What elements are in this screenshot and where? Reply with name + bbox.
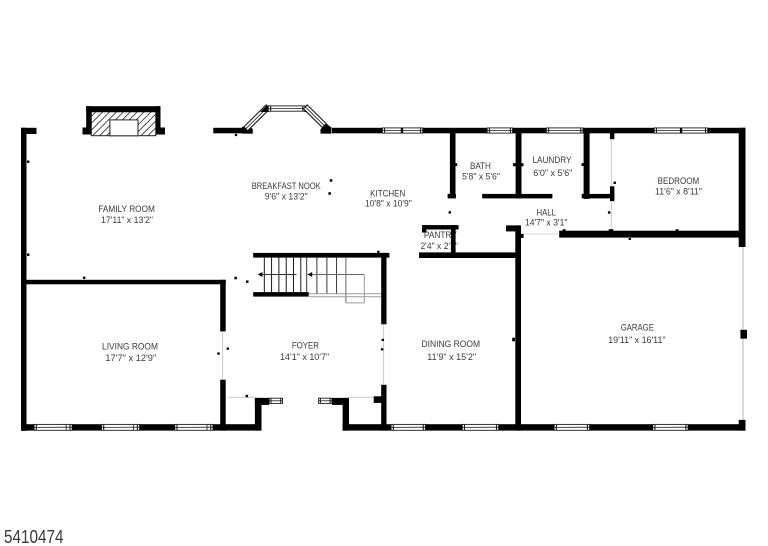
svg-text:FAMILY ROOM: FAMILY ROOM [98, 204, 155, 214]
svg-text:BREAKFAST NOOK: BREAKFAST NOOK [252, 181, 322, 191]
svg-text:LIVING ROOM: LIVING ROOM [102, 341, 158, 351]
svg-text:HALL: HALL [536, 207, 556, 217]
svg-text:BEDROOM: BEDROOM [658, 176, 700, 186]
svg-text:5'8" x 5'6": 5'8" x 5'6" [462, 171, 500, 181]
svg-text:GARAGE: GARAGE [621, 323, 654, 333]
svg-text:LAUNDRY: LAUNDRY [532, 155, 571, 165]
svg-text:17'7" x 12'9": 17'7" x 12'9" [105, 353, 156, 363]
svg-text:BATH: BATH [470, 161, 491, 171]
svg-text:5410474: 5410474 [4, 526, 64, 546]
svg-text:KITCHEN: KITCHEN [370, 188, 405, 198]
svg-text:14'7" x 3'1": 14'7" x 3'1" [525, 218, 568, 228]
svg-text:6'0" x 5'6": 6'0" x 5'6" [533, 168, 572, 178]
svg-text:14'1" x 10'7": 14'1" x 10'7" [280, 352, 329, 362]
svg-text:17'11" x 13'2": 17'11" x 13'2" [101, 215, 153, 225]
svg-text:10'8" x 10'9": 10'8" x 10'9" [365, 199, 412, 209]
svg-text:11'9" x 15'2": 11'9" x 15'2" [427, 352, 476, 362]
svg-text:FOYER: FOYER [292, 340, 319, 350]
svg-text:11'6" x 8'11": 11'6" x 8'11" [655, 186, 702, 196]
svg-text:19'11" x 16'11": 19'11" x 16'11" [608, 335, 665, 345]
svg-text:DINING ROOM: DINING ROOM [422, 339, 481, 349]
svg-text:9'6" x 13'2": 9'6" x 13'2" [265, 192, 308, 202]
